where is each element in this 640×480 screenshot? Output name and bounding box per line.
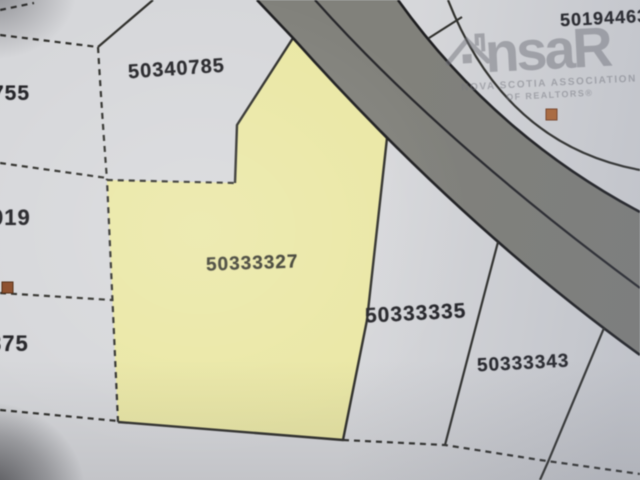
nsar-logo-ns: ns [484,24,546,79]
pid-label-50194463: 50194463 [560,6,640,32]
marker-square-left [2,282,13,293]
pid-label-755-partial: 755 [0,82,30,106]
map-scene: ns aR NOVA SCOTIA ASSOCIATION OF REALTOR… [0,0,640,480]
parcel-map: ns aR NOVA SCOTIA ASSOCIATION OF REALTOR… [0,0,640,480]
pid-label-375-partial: 375 [0,331,29,357]
pid-label-50333327: 50333327 [206,251,299,276]
marker-square-right [546,109,557,120]
house-icon [443,27,491,73]
nsar-watermark: ns aR NOVA SCOTIA ASSOCIATION OF REALTOR… [446,19,640,105]
pid-label-019-partial: 019 [0,205,31,231]
